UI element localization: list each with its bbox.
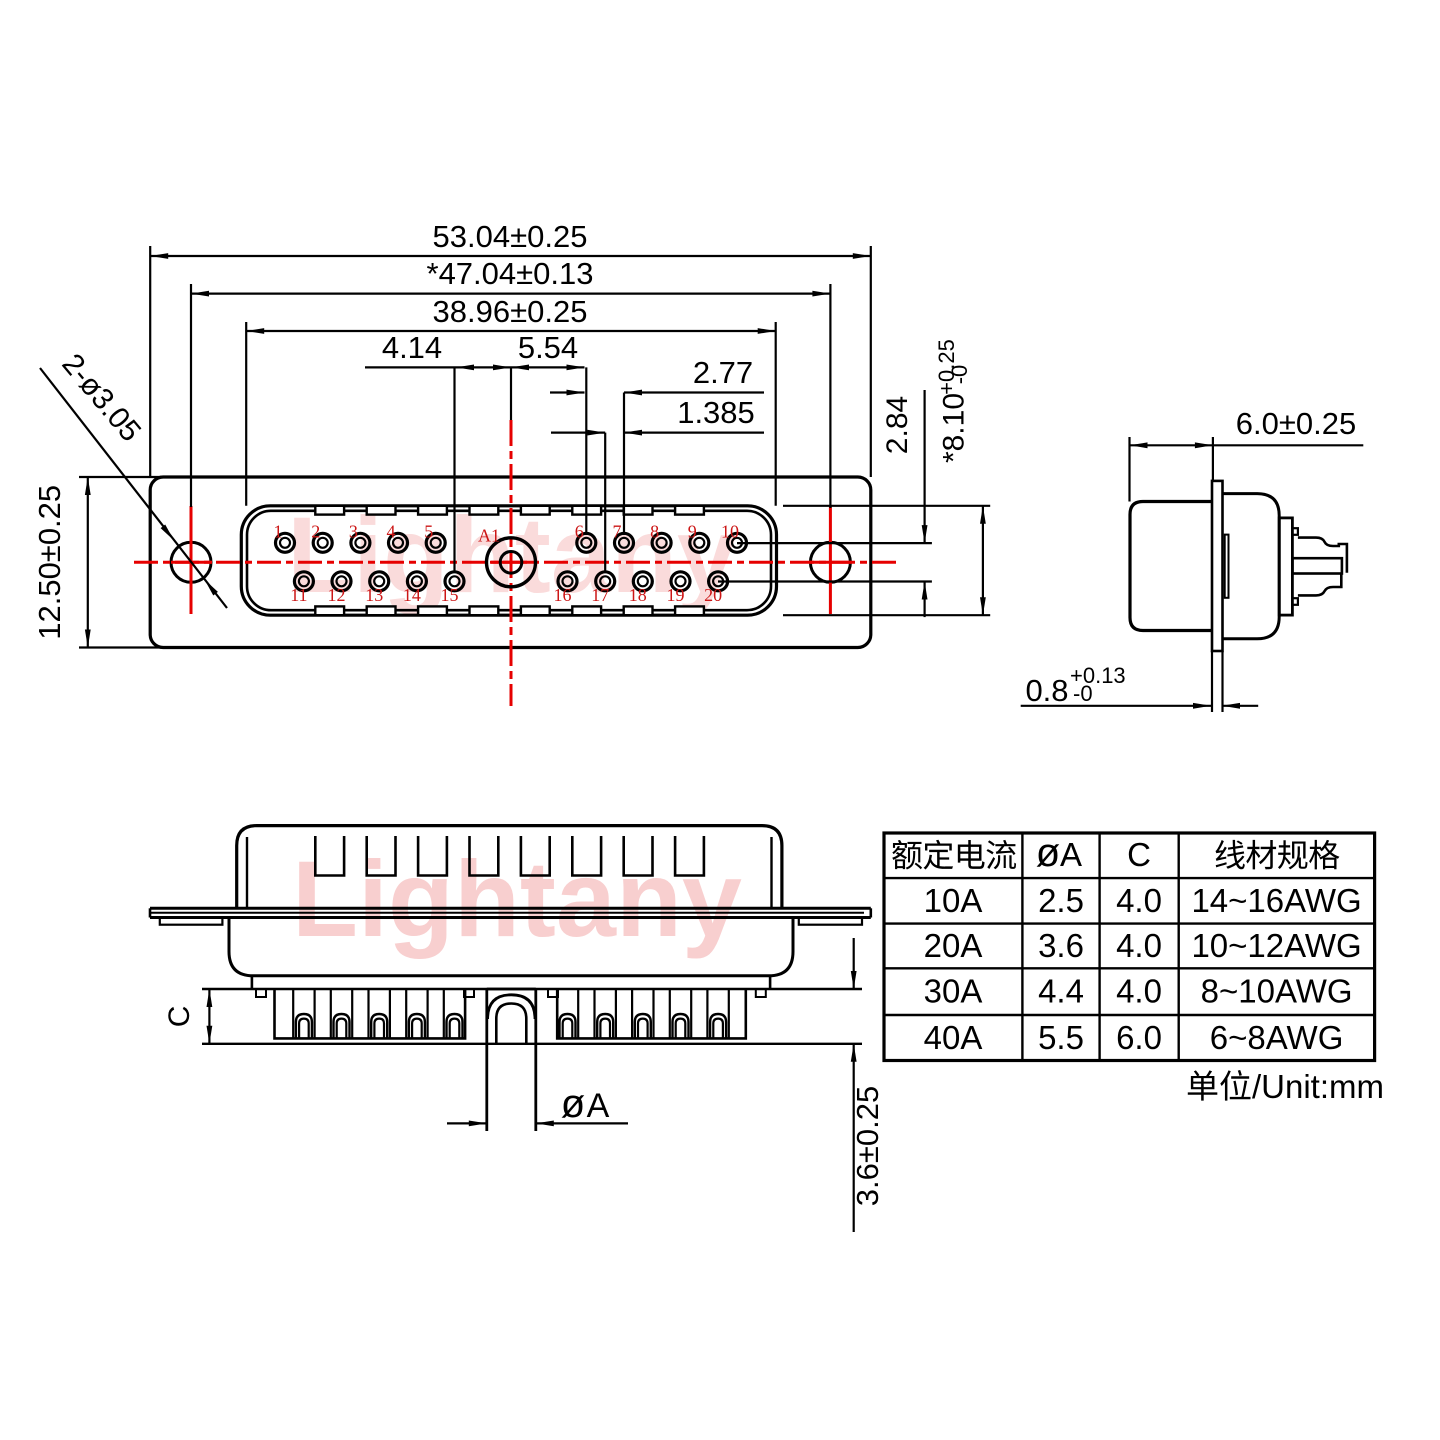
svg-text:20A: 20A <box>924 927 983 964</box>
svg-text:13: 13 <box>365 585 383 605</box>
svg-text:3: 3 <box>349 522 358 542</box>
svg-text:2: 2 <box>311 522 320 542</box>
svg-text:17: 17 <box>591 585 609 605</box>
svg-text:16: 16 <box>554 585 572 605</box>
svg-text:4.14: 4.14 <box>382 330 442 365</box>
svg-text:4.0: 4.0 <box>1116 927 1162 964</box>
svg-text:-0: -0 <box>1073 681 1093 706</box>
svg-text:4: 4 <box>387 522 396 542</box>
svg-text:6: 6 <box>575 522 584 542</box>
svg-text:A: A <box>1060 836 1082 873</box>
svg-text:8: 8 <box>650 522 659 542</box>
svg-text:10: 10 <box>721 522 739 542</box>
svg-text:14~16AWG: 14~16AWG <box>1191 882 1361 919</box>
svg-text:A: A <box>587 1087 610 1125</box>
svg-text:2.84: 2.84 <box>881 396 914 454</box>
svg-text:14: 14 <box>403 585 421 605</box>
svg-text:30A: 30A <box>924 973 983 1010</box>
svg-text:ø: ø <box>561 1082 585 1126</box>
svg-text:C: C <box>163 1006 196 1028</box>
svg-text:4.0: 4.0 <box>1116 882 1162 919</box>
svg-text:-0: -0 <box>947 365 972 385</box>
svg-text:/Unit:mm: /Unit:mm <box>1252 1068 1384 1105</box>
svg-text:18: 18 <box>629 585 647 605</box>
svg-text:1: 1 <box>274 522 283 542</box>
svg-text:2.5: 2.5 <box>1038 882 1084 919</box>
svg-text:19: 19 <box>667 585 685 605</box>
svg-text:2.77: 2.77 <box>693 355 753 390</box>
svg-text:10~12AWG: 10~12AWG <box>1191 927 1361 964</box>
svg-text:0.8: 0.8 <box>1025 673 1068 708</box>
svg-text:3.6: 3.6 <box>1038 927 1084 964</box>
svg-text:53.04±0.25: 53.04±0.25 <box>433 219 588 254</box>
svg-text:6.0±0.25: 6.0±0.25 <box>1236 406 1356 441</box>
svg-text:5.54: 5.54 <box>518 330 578 365</box>
svg-text:5: 5 <box>424 522 433 542</box>
svg-text:ø: ø <box>1036 831 1060 875</box>
svg-text:4.4: 4.4 <box>1038 973 1084 1010</box>
svg-text:38.96±0.25: 38.96±0.25 <box>433 294 588 329</box>
svg-text:10A: 10A <box>924 882 983 919</box>
svg-text:6.0: 6.0 <box>1116 1019 1162 1056</box>
svg-text:5.5: 5.5 <box>1038 1019 1084 1056</box>
svg-text:7: 7 <box>613 522 622 542</box>
svg-text:A1: A1 <box>478 526 500 546</box>
svg-text:20: 20 <box>704 585 722 605</box>
svg-text:*8.10: *8.10 <box>938 393 971 463</box>
svg-text:8~10AWG: 8~10AWG <box>1201 973 1353 1010</box>
svg-text:40A: 40A <box>924 1019 983 1056</box>
svg-text:12.50±0.25: 12.50±0.25 <box>32 485 67 640</box>
svg-text:1.385: 1.385 <box>677 395 755 430</box>
svg-text:11: 11 <box>290 585 307 605</box>
svg-text:*47.04±0.13: *47.04±0.13 <box>427 256 594 291</box>
svg-text:15: 15 <box>441 585 459 605</box>
svg-text:4.0: 4.0 <box>1116 973 1162 1010</box>
svg-text:9: 9 <box>688 522 697 542</box>
svg-text:12: 12 <box>328 585 346 605</box>
svg-text:C: C <box>1127 836 1151 873</box>
svg-text:3.6±0.25: 3.6±0.25 <box>850 1086 885 1206</box>
svg-text:6~8AWG: 6~8AWG <box>1210 1019 1344 1056</box>
